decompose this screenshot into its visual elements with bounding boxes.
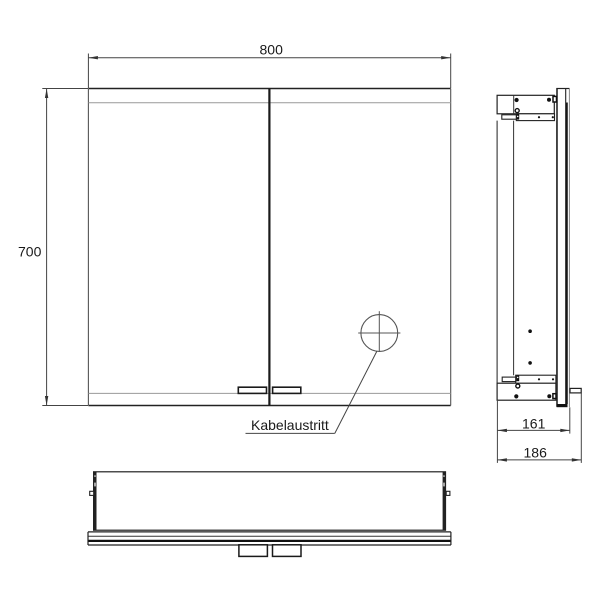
svg-text:186: 186 [524, 444, 548, 460]
svg-text:800: 800 [260, 42, 284, 58]
svg-text:700: 700 [18, 244, 42, 260]
svg-text:Kabelaustritt: Kabelaustritt [251, 417, 329, 433]
svg-text:161: 161 [522, 415, 546, 431]
